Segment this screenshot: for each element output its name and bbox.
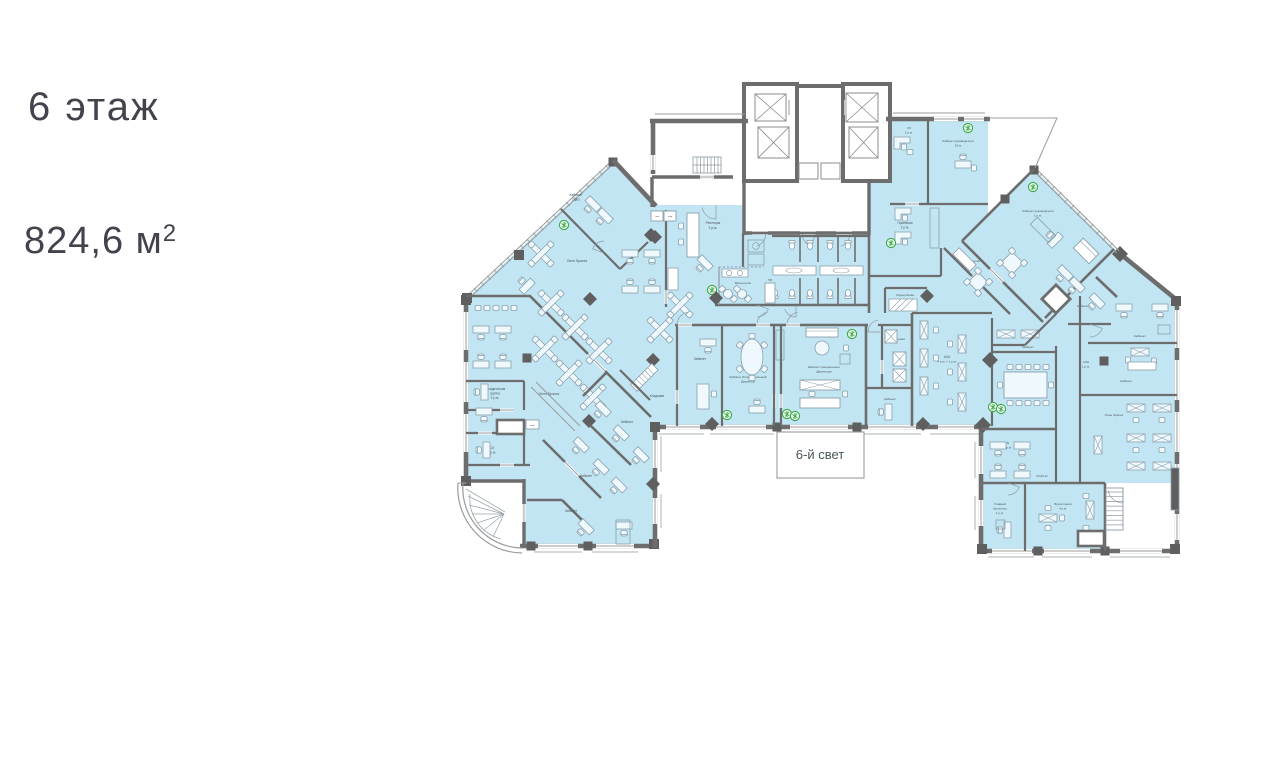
svg-text:6-й свет: 6-й свет	[796, 447, 844, 462]
svg-text:4 р.м. + 1 р.м.: 4 р.м. + 1 р.м.	[937, 360, 956, 364]
svg-text:Приемная: Приемная	[897, 221, 912, 225]
svg-text:Сб: Сб	[490, 446, 494, 450]
svg-text:22,63 м²: 22,63 м²	[1036, 474, 1047, 478]
svg-text:Опен Spaces: Опен Spaces	[567, 259, 588, 263]
svg-text:1 р.м.: 1 р.м.	[1082, 365, 1090, 369]
svg-text:2 р.м.: 2 р.м.	[709, 226, 718, 230]
svg-text:бухгалтер: бухгалтер	[993, 507, 1007, 511]
svg-text:Ресепция: Ресепция	[706, 221, 721, 225]
svg-text:группа: группа	[490, 392, 500, 396]
svg-text:Кабинет: Кабинет	[565, 509, 578, 513]
svg-text:824,6 м2: 824,6 м2	[24, 220, 177, 262]
svg-text:2 р.м.: 2 р.м.	[901, 226, 910, 230]
svg-text:Б: Б	[1007, 441, 1009, 445]
svg-text:1 р.м.: 1 р.м.	[996, 511, 1004, 515]
svg-text:Кабинет: Кабинет	[580, 474, 593, 478]
svg-text:Кабинет: Кабинет	[570, 193, 583, 197]
svg-text:Опен Spaces: Опен Spaces	[539, 392, 560, 396]
svg-text:лиф: лиф	[668, 215, 672, 218]
svg-text:Директора: Директора	[816, 370, 831, 374]
svg-text:2 р.м.: 2 р.м.	[491, 396, 500, 400]
svg-text:6 этаж: 6 этаж	[28, 85, 160, 129]
svg-text:1 р.м.: 1 р.м.	[1034, 214, 1042, 218]
svg-text:1 р.м.: 1 р.м.	[905, 131, 913, 135]
svg-text:Главный: Главный	[994, 502, 1006, 506]
svg-text:Кабинет руководителя: Кабинет руководителя	[942, 139, 974, 143]
svg-text:Кабинет: Кабинет	[1134, 334, 1146, 338]
svg-text:Гардеробная: Гардеробная	[896, 293, 915, 297]
svg-text:4 р.м.: 4 р.м.	[1059, 507, 1067, 511]
svg-text:ПИП: ПИП	[572, 198, 580, 202]
svg-text:Бухгалтерия: Бухгалтерия	[1054, 502, 1072, 506]
svg-text:Кабинет: Кабинет	[1120, 379, 1132, 383]
svg-text:АХА: АХА	[944, 355, 951, 359]
svg-text:Кабинет: Кабинет	[884, 397, 896, 401]
svg-text:Кабинет: Кабинет	[621, 420, 634, 424]
svg-text:Кабинет Генерального: Кабинет Генерального	[808, 365, 841, 369]
svg-text:Кладовая: Кладовая	[650, 394, 665, 398]
svg-text:Кабинет руководителя: Кабинет руководителя	[1022, 209, 1054, 213]
svg-text:ПМ: ПМ	[768, 278, 772, 282]
svg-text:АХО: АХО	[1083, 360, 1090, 364]
svg-text:Мини-кухня: Мини-кухня	[735, 281, 752, 285]
svg-text:люк: люк	[655, 216, 659, 218]
svg-text:Кабинет: Кабинет	[694, 357, 707, 361]
svg-text:15 м: 15 м	[955, 144, 961, 148]
svg-text:Опен Spaces: Опен Spaces	[1105, 413, 1124, 417]
svg-text:Кабинет Исполнительный: Кабинет Исполнительный	[729, 375, 766, 379]
svg-text:Сб: Сб	[907, 126, 911, 130]
svg-text:шкф: шкф	[530, 424, 535, 427]
